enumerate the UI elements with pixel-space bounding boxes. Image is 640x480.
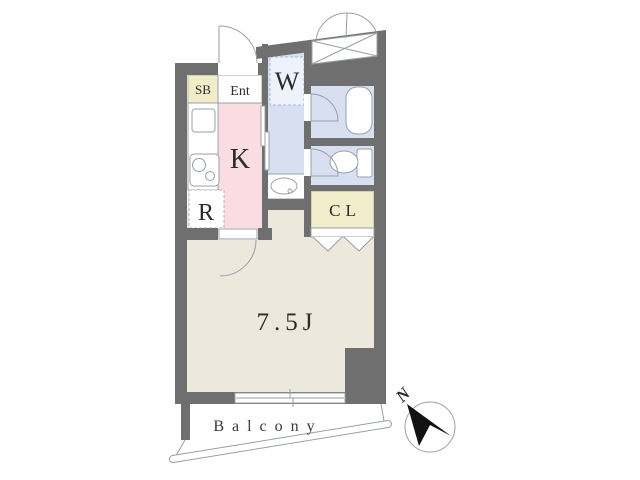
floor-plan: SB Ent K R W CL 7.5J Balcony N [0, 0, 640, 480]
kitchen-label: K [230, 144, 250, 175]
balcony-label: Balcony [213, 418, 322, 435]
entrance-label: Ent [230, 84, 250, 99]
room-door-leaf [219, 229, 257, 239]
compass-north-label: N [391, 383, 414, 406]
bathtub-icon [346, 87, 372, 134]
wall-bath-toilet [311, 138, 374, 146]
main-room-size-label: 7.5J [257, 309, 318, 336]
closet-folding-door-panel [311, 228, 374, 237]
shoe-box-label: SB [195, 82, 211, 97]
toilet-door-gap [304, 149, 311, 176]
bath-door-gap [304, 94, 311, 121]
refrigerator-label: R [198, 200, 214, 226]
wall-toilet-closet [311, 185, 374, 191]
closet-label: CL [329, 201, 361, 220]
washbasin-icon [266, 174, 305, 199]
sink-icon [192, 109, 215, 132]
wall-washroom-bottom [262, 199, 311, 210]
north-arrow-icon [405, 402, 455, 452]
floor-plan-canvas: SB Ent K R W CL 7.5J Balcony N [0, 0, 640, 480]
wall-balcony-left [181, 404, 190, 440]
entrance-door-gap [218, 63, 258, 75]
entrance-door-arc [219, 26, 257, 63]
washer-label: W [275, 67, 300, 96]
stove-icon [190, 154, 219, 186]
